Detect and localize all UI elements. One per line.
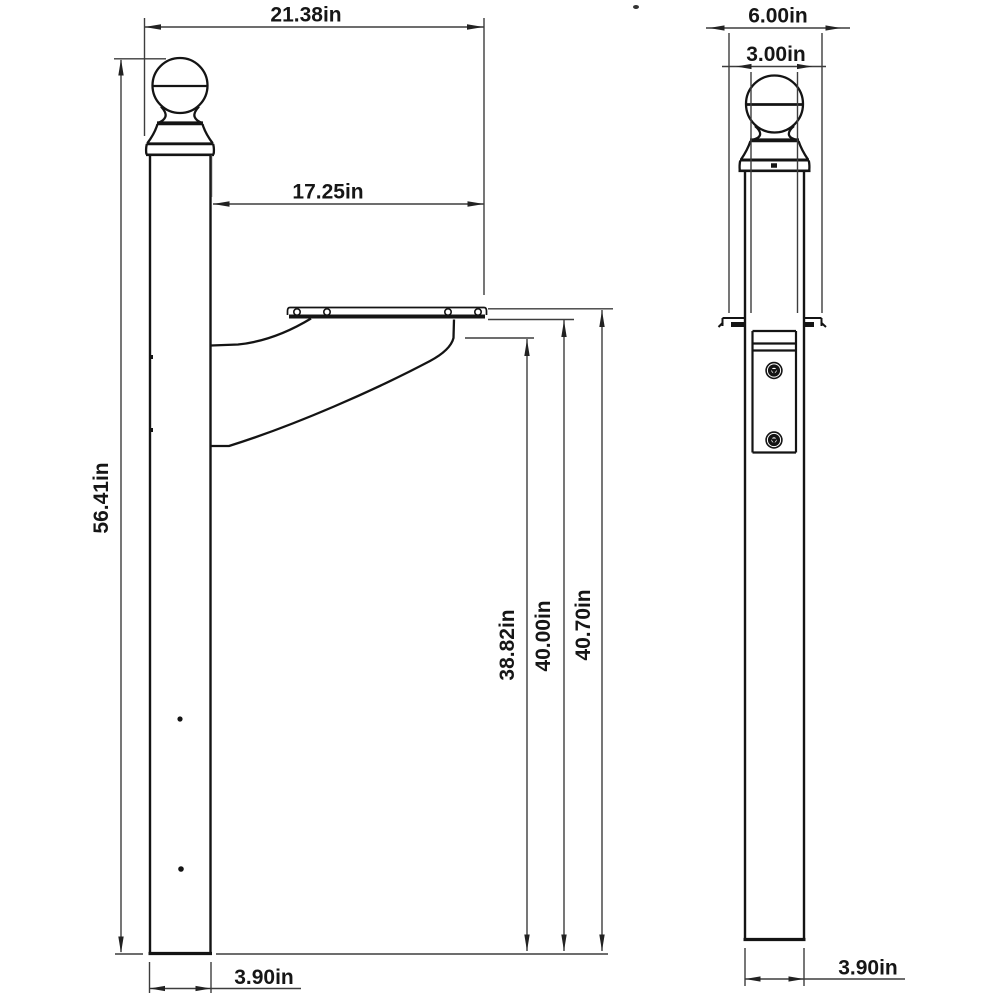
svg-text:21.38in: 21.38in: [270, 4, 341, 27]
svg-text:6.00in: 6.00in: [748, 5, 808, 28]
svg-text:3.00in: 3.00in: [746, 43, 806, 66]
svg-text:3.90in: 3.90in: [838, 957, 898, 980]
svg-text:3.90in: 3.90in: [234, 966, 294, 989]
svg-text:38.82in: 38.82in: [496, 609, 519, 680]
svg-text:56.41in: 56.41in: [90, 462, 113, 533]
svg-text:17.25in: 17.25in: [292, 181, 363, 204]
svg-text:40.00in: 40.00in: [532, 600, 555, 671]
svg-text:40.70in: 40.70in: [572, 589, 595, 660]
